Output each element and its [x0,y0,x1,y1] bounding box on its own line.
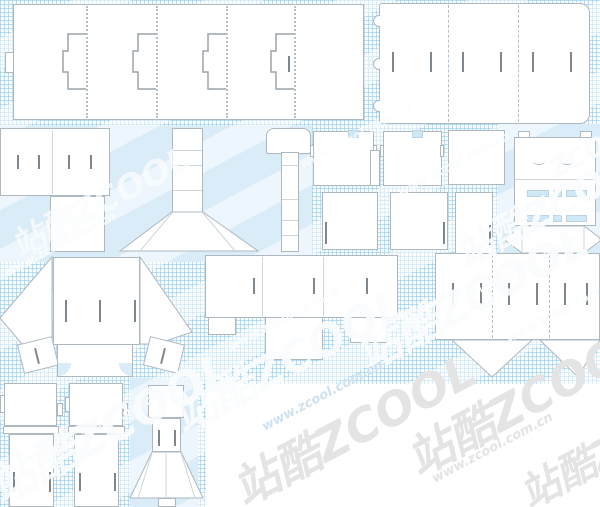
step-flap [208,317,236,335]
slit [366,278,368,294]
slit [253,278,255,294]
fold-band [3,426,59,434]
slit [174,430,176,446]
tray-base [506,226,600,254]
fan-flare [130,452,203,499]
slit [114,473,116,491]
slot-cut [553,215,562,222]
curved-flap [266,128,311,154]
fold-band [68,426,125,434]
slit [65,300,67,322]
step-flap [350,317,387,343]
side-tab [57,403,63,416]
slit [570,52,572,72]
wing-right [140,257,192,345]
triangle-flap [452,340,532,378]
slit [68,155,70,169]
slit [79,473,81,491]
slit [288,56,290,72]
slit [430,52,432,72]
interlock-cut [270,33,294,90]
slit [586,283,588,305]
slit [480,283,482,305]
slot-cut [566,215,587,222]
slit [325,222,327,244]
side-hook [310,145,314,157]
slit [443,222,445,244]
slit [158,430,160,446]
slit [313,278,315,294]
slit [134,300,136,322]
slit [38,155,40,169]
slit [532,52,534,72]
dieline-sheet: 站酷ZCOOL www.zcool.com.cn www.zcool.com.c… [0,0,600,507]
top-notch [412,130,423,138]
side-hook [380,145,384,157]
slot-cut [527,215,549,222]
slit [99,300,101,322]
skirt-flare [120,212,258,252]
side-tab [123,403,128,416]
interlock-cut [132,33,156,90]
slit [90,155,92,169]
slit [500,52,502,72]
interlock-cut [202,33,226,90]
slit [462,52,464,72]
slit [17,155,19,169]
thumb-cut [561,158,573,165]
slit [536,283,538,305]
slot-cut [566,190,587,197]
slit [13,472,15,492]
step-flap [265,317,323,360]
foot-tab [158,498,176,507]
slot-cut [553,190,562,197]
interlock-cut [62,33,86,90]
slit [489,225,491,245]
wing-left [0,257,53,345]
side-tab [0,395,5,413]
slit [508,283,510,305]
thumb-cut [533,158,545,165]
side-tab [5,52,14,73]
white-zone [206,384,600,507]
triangle-flap [540,340,600,378]
slit [392,52,394,72]
slit [564,283,566,305]
side-hook [440,145,444,157]
top-notch [348,130,359,138]
slot-cut [527,190,549,197]
center-tab [370,150,380,186]
slit [452,283,454,305]
side-tab [65,397,70,412]
slit [49,472,51,492]
